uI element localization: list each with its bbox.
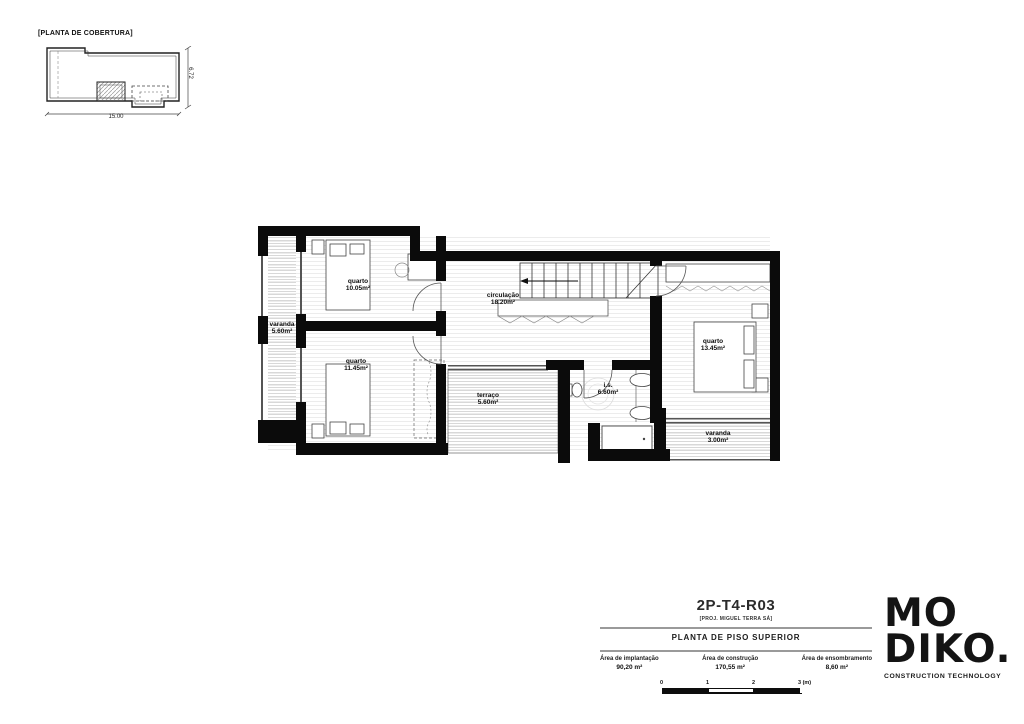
roof-dim-vertical: 6.72 [187, 67, 193, 79]
room-label-varanda-1: varanda 5.60m² [256, 321, 308, 336]
scale-bar: 0 1 2 3 (m) [660, 680, 812, 698]
title-block: 2P-T4-R03 [PROJ. MIGUEL TERRA SÁ] PLANTA… [600, 597, 872, 698]
area-implantacao: Área de implantação 90,20 m² [600, 656, 659, 671]
divider-line [600, 650, 872, 652]
scale-tick-2: 2 [752, 680, 755, 686]
room-label-varanda-2: varanda 3.00m² [686, 430, 750, 445]
logo-tagline: CONSTRUCTION TECHNOLOGY [884, 673, 1014, 680]
roof-plan-title: [PLANTA DE COBERTURA] [38, 30, 218, 37]
scale-baseline [662, 693, 802, 694]
bathtub [602, 426, 652, 452]
modiko-logo: MO DIKO. CONSTRUCTION TECHNOLOGY [884, 596, 1014, 680]
scale-tick-0: 0 [660, 680, 663, 686]
drawing-code: 2P-T4-R03 [600, 597, 872, 614]
scale-tick-3: 3 (m) [798, 680, 811, 686]
room-label-quarto-2: quarto 11.45m² [326, 358, 386, 373]
room-label-is: i.s. 6.60m² [583, 382, 633, 397]
room-label-quarto-1: quarto 10.05m² [328, 278, 388, 293]
room-label-circulacao: circulação 18.20m² [471, 292, 535, 307]
room-label-quarto-3: quarto 13.45m² [682, 338, 744, 353]
roof-dim-horizontal: 15.00 [86, 114, 146, 120]
logo-line-2: DIKO. [884, 632, 1014, 668]
area-ensombramento: Área de ensombramento 8,60 m² [802, 656, 872, 671]
drawing-author: [PROJ. MIGUEL TERRA SÁ] [600, 616, 872, 622]
area-summary: Área de implantação 90,20 m² Área de con… [600, 656, 872, 671]
room-label-terraco: terraço 5.60m² [456, 392, 520, 407]
roof-plan: [PLANTA DE COBERTURA] [38, 30, 218, 132]
drawing-title: PLANTA DE PISO SUPERIOR [600, 629, 872, 645]
roof-skylight [97, 82, 125, 101]
floor-plan: varanda 5.60m² quarto 10.05m² quarto 11.… [258, 226, 780, 466]
scale-tick-1: 1 [706, 680, 709, 686]
area-construcao: Área de construção 170,55 m² [702, 656, 758, 671]
drawing-sheet: [PLANTA DE COBERTURA] [0, 0, 1024, 724]
